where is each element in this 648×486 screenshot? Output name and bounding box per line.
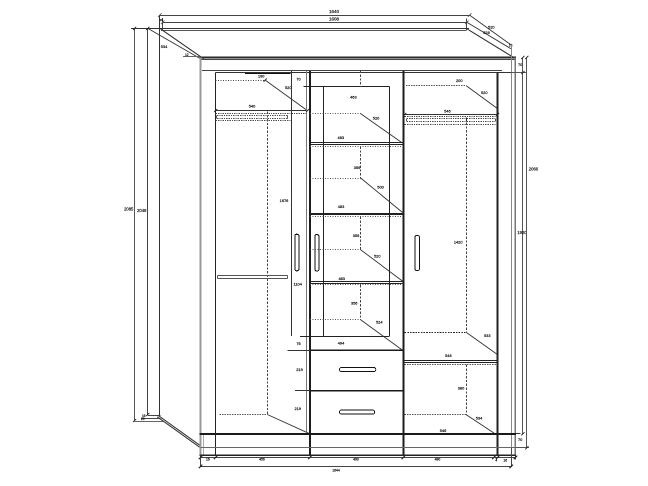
svg-text:490: 490 — [353, 458, 359, 462]
svg-text:190: 190 — [258, 74, 265, 79]
svg-text:500: 500 — [377, 185, 384, 190]
svg-text:356: 356 — [354, 165, 361, 170]
svg-text:456: 456 — [259, 458, 265, 462]
svg-text:1104: 1104 — [294, 282, 303, 287]
svg-text:380: 380 — [458, 386, 465, 391]
svg-text:12: 12 — [185, 53, 189, 57]
svg-text:546: 546 — [445, 353, 452, 358]
svg-text:520: 520 — [481, 90, 488, 95]
svg-text:2066: 2066 — [529, 167, 539, 172]
svg-text:219: 219 — [294, 406, 301, 411]
svg-text:356: 356 — [351, 300, 358, 305]
svg-text:534: 534 — [476, 416, 483, 421]
svg-text:1644: 1644 — [332, 468, 340, 472]
svg-text:16: 16 — [509, 44, 513, 48]
svg-text:546: 546 — [444, 109, 451, 114]
svg-text:20: 20 — [141, 417, 145, 421]
svg-text:2085: 2085 — [124, 207, 134, 212]
svg-text:533: 533 — [484, 333, 491, 338]
svg-text:534: 534 — [161, 44, 168, 49]
svg-text:16: 16 — [503, 459, 507, 463]
svg-text:494: 494 — [338, 340, 345, 345]
svg-text:1920: 1920 — [517, 230, 527, 235]
svg-text:463: 463 — [350, 94, 357, 99]
svg-text:200: 200 — [456, 78, 463, 83]
svg-text:219: 219 — [296, 367, 303, 372]
svg-text:520: 520 — [374, 253, 381, 258]
svg-text:16: 16 — [206, 458, 210, 462]
svg-text:1676: 1676 — [280, 198, 289, 203]
svg-text:540: 540 — [249, 104, 256, 109]
svg-text:546: 546 — [440, 428, 447, 433]
svg-text:1420: 1420 — [454, 240, 463, 245]
svg-text:490: 490 — [435, 458, 441, 462]
svg-text:1608: 1608 — [329, 17, 340, 22]
svg-text:483: 483 — [338, 135, 345, 140]
svg-text:2049: 2049 — [137, 208, 147, 213]
svg-text:76: 76 — [296, 341, 300, 346]
svg-text:528: 528 — [483, 30, 490, 35]
svg-text:520: 520 — [373, 116, 380, 121]
svg-text:483: 483 — [338, 276, 345, 281]
svg-text:16: 16 — [160, 18, 164, 22]
svg-text:524: 524 — [376, 320, 383, 325]
svg-text:483: 483 — [338, 204, 345, 209]
svg-text:356: 356 — [353, 233, 360, 238]
svg-text:4: 4 — [495, 459, 497, 463]
svg-text:1640: 1640 — [329, 9, 340, 14]
